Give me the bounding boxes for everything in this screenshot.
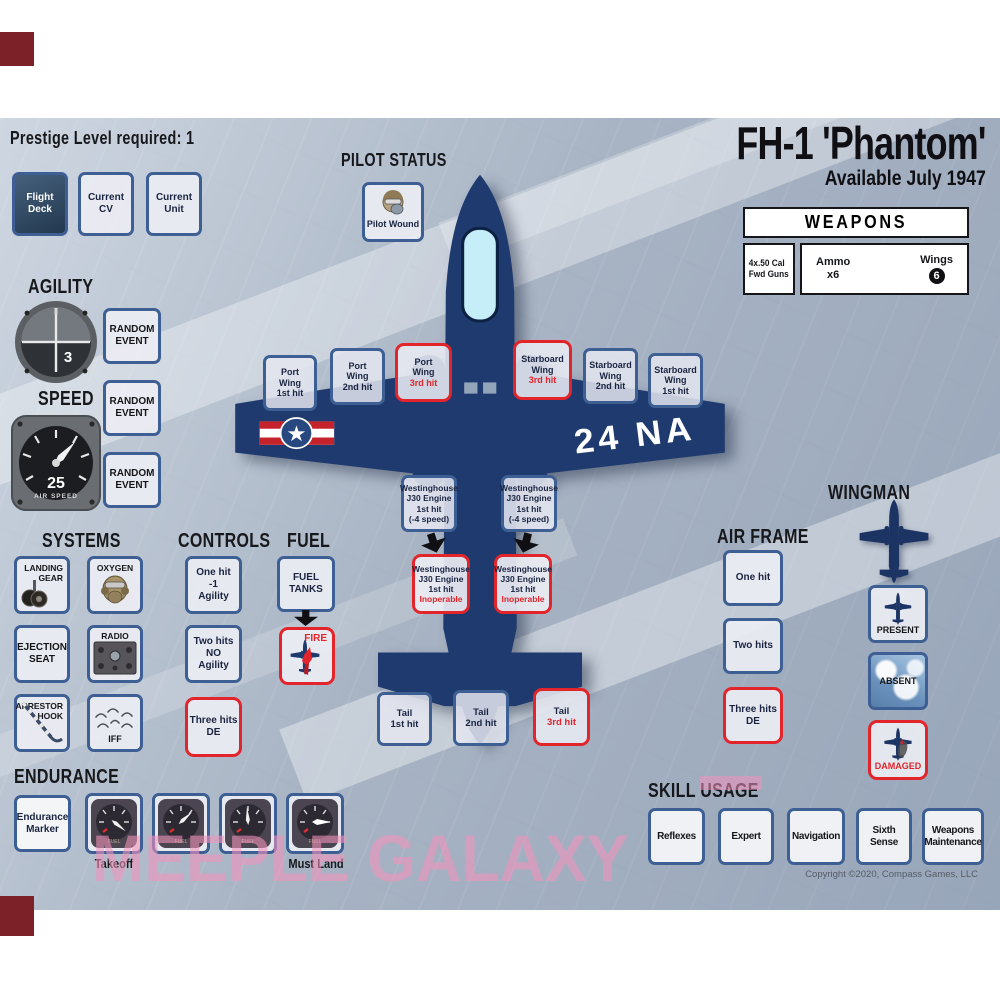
skill-expert-box[interactable]: Expert [718, 808, 774, 865]
burning-aircraft-icon [290, 639, 320, 683]
airframe-one-hit-box[interactable]: One hit [723, 550, 783, 606]
system-ejection-seat-box[interactable]: EJECTION SEAT [14, 625, 70, 683]
landing-gear-icon [20, 579, 50, 609]
speed-heading: SPEED [38, 388, 94, 411]
ammo-label: Ammo [816, 256, 850, 269]
agility-heading: AGILITY [28, 276, 93, 299]
fuel-heading: FUEL [287, 530, 330, 553]
tail-1st-hit-box[interactable]: Tail 1st hit [377, 692, 432, 746]
speed-gauge: 25 AIR SPEED [10, 414, 102, 512]
skill-navigation-box[interactable]: Navigation [787, 808, 845, 865]
starboard-engine-inoperable-box[interactable]: Westinghouse J30 Engine 1st hit Inoperab… [494, 554, 552, 614]
damaged-jet-icon [883, 727, 913, 761]
fuel-tanks-box[interactable]: FUEL TANKS [277, 556, 335, 612]
svg-text:★: ★ [286, 421, 306, 445]
starboard-engine-first-hit-box[interactable]: Westinghouse J30 Engine 1st hit (-4 spee… [501, 475, 557, 532]
controls-one-hit-box[interactable]: One hit -1 Agility [185, 556, 242, 614]
card-subtitle: Available July 1947 [825, 167, 986, 191]
port-wing-1st-hit-box[interactable]: Port Wing 1st hit [263, 355, 317, 411]
endurance-heading: ENDURANCE [14, 766, 119, 789]
port-engine-inoperable-box[interactable]: Westinghouse J30 Engine 1st hit Inoperab… [412, 554, 470, 614]
prestige-label: Prestige Level required: 1 [10, 128, 194, 149]
national-insignia: ★ [260, 418, 334, 448]
skill-sixth-sense-box[interactable]: Sixth Sense [856, 808, 912, 865]
speed-dial-label: AIR SPEED [34, 493, 78, 500]
starboard-wing-2nd-hit-box[interactable]: Starboard Wing 2nd hit [583, 348, 638, 404]
forward-guns-box[interactable]: 4x.50 Cal Fwd Guns [743, 243, 795, 295]
airframe-heading: AIR FRAME [717, 526, 809, 549]
system-oxygen-box[interactable]: OXYGEN [87, 556, 143, 614]
slot-current-cv[interactable]: Current CV [78, 172, 134, 236]
wings-label: Wings [920, 254, 953, 267]
fuel-fire-box[interactable]: FIRE [279, 627, 335, 685]
canopy [463, 228, 498, 321]
adjacent-card-edge-top [0, 32, 34, 66]
speed-value: 25 [47, 475, 65, 492]
starboard-wing-3rd-hit-box[interactable]: Starboard Wing 3rd hit [513, 340, 572, 400]
wingman-present-box[interactable]: PRESENT [868, 585, 928, 643]
pilot-status-heading: PILOT STATUS [341, 150, 447, 171]
copyright-text: Copyright ©2020, Compass Games, LLC [805, 869, 978, 880]
ammo-value: x6 [816, 269, 850, 282]
wings-count-badge: 6 [929, 268, 945, 284]
port-engine-first-hit-box[interactable]: Westinghouse J30 Engine 1st hit (-4 spee… [401, 475, 457, 532]
iff-waves-icon [92, 703, 138, 735]
airframe-two-hits-box[interactable]: Two hits [723, 618, 783, 674]
tail-3rd-hit-box[interactable]: Tail 3rd hit [533, 688, 590, 746]
pilot-wound-box[interactable]: Pilot Wound [362, 182, 424, 242]
skill-reflexes-box[interactable]: Reflexes [648, 808, 705, 865]
random-event-box-3[interactable]: RANDOM EVENT [103, 452, 161, 508]
controls-two-hits-box[interactable]: Two hits NO Agility [185, 625, 242, 683]
endurance-marker-box[interactable]: Endurance Marker [14, 795, 71, 852]
weapons-heading: WEAPONS [805, 212, 908, 233]
radio-panel-icon [93, 641, 137, 675]
adjacent-card-edge-bottom [0, 896, 34, 936]
game-card: ★ 24 NA Prestige Level required: 1 Fligh… [0, 0, 1000, 1000]
airframe-three-hits-box[interactable]: Three hits DE [723, 687, 783, 744]
ammo-wings-box[interactable]: Ammo x6 Wings 6 [800, 243, 969, 295]
system-radio-box[interactable]: RADIO [87, 625, 143, 683]
pilot-wound-label: Pilot Wound [367, 219, 419, 230]
starboard-wing-1st-hit-box[interactable]: Starboard Wing 1st hit [648, 353, 703, 408]
oxygen-mask-icon [98, 573, 132, 607]
card-title: FH-1 'Phantom' [737, 116, 986, 170]
systems-heading: SYSTEMS [42, 530, 121, 553]
tail-2nd-hit-box[interactable]: Tail 2nd hit [453, 690, 509, 746]
agility-gauge: 3 [14, 300, 98, 384]
skill-weapons-maintenance-box[interactable]: Weapons Maintenance [922, 808, 984, 865]
wingman-absent-box[interactable]: ABSENT [868, 652, 928, 710]
random-event-box-1[interactable]: RANDOM EVENT [103, 308, 161, 364]
watermark-fragment [700, 776, 762, 790]
slot-label: Current CV [88, 192, 124, 216]
weapons-header: WEAPONS [743, 207, 969, 238]
watermark-text: MEEPLE GALAXY [92, 820, 629, 896]
slot-flight-deck[interactable]: Flight Deck [12, 172, 68, 236]
arrestor-hook-icon [17, 697, 67, 749]
wingman-damaged-box[interactable]: DAMAGED [868, 720, 928, 780]
wingman-aircraft-icon [858, 498, 930, 584]
port-wing-3rd-hit-box[interactable]: Port Wing 3rd hit [395, 343, 452, 402]
system-landing-gear-box[interactable]: LANDING GEAR [14, 556, 70, 614]
wingman-jet-icon [884, 592, 912, 625]
slot-label: Flight Deck [26, 192, 53, 216]
slot-label: Current Unit [156, 192, 192, 216]
controls-three-hits-box[interactable]: Three hits DE [185, 697, 242, 757]
agility-value: 3 [64, 349, 72, 366]
gun-label: 4x.50 Cal Fwd Guns [749, 258, 789, 279]
system-iff-box[interactable]: IFF [87, 694, 143, 752]
random-event-box-2[interactable]: RANDOM EVENT [103, 380, 161, 436]
slot-current-unit[interactable]: Current Unit [146, 172, 202, 236]
controls-heading: CONTROLS [178, 530, 270, 553]
pilot-head-icon [376, 189, 410, 219]
port-wing-2nd-hit-box[interactable]: Port Wing 2nd hit [330, 348, 385, 405]
system-arrestor-hook-box[interactable]: ARRESTOR HOOK [14, 694, 70, 752]
